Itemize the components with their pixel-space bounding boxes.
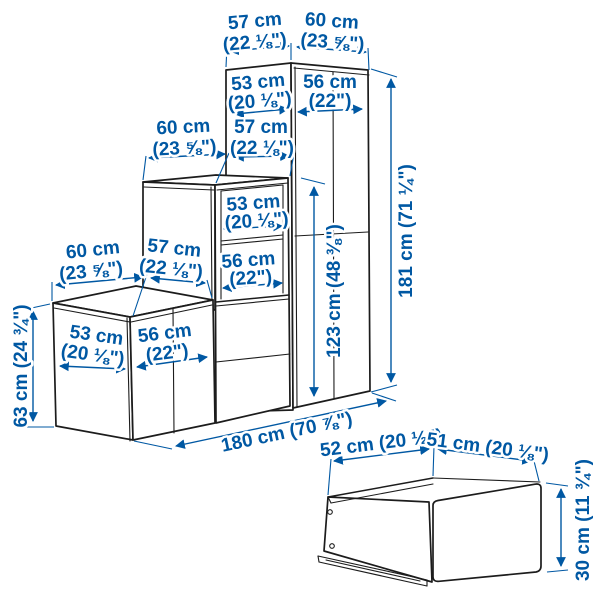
dim-height-low: 63 cm (24 ¾") <box>11 304 54 428</box>
dim-label: (22") <box>309 91 352 112</box>
dim-drawer-depth: 51 cm (20 ⅛") <box>425 429 550 481</box>
dim-label: 57 cm <box>234 117 288 138</box>
dim-label: 123 cm (48 ⅜") <box>324 224 345 358</box>
dim-label: 181 cm (71 ¼") <box>396 164 417 298</box>
dim-tall-side: 53 cm (20 ⅛") <box>225 69 292 114</box>
dim-label: 63 cm (24 ¾") <box>11 304 32 427</box>
dim-middle-shelf-upper: 53 cm (20 ⅛") <box>223 191 289 234</box>
dim-label: (22") <box>229 267 273 291</box>
dim-label: 56 cm <box>303 72 357 93</box>
dim-label: 30 cm (11 ¾") <box>573 459 594 581</box>
drawer-front-panel <box>433 484 541 581</box>
dim-height-tall: 181 cm (71 ¼") <box>371 69 417 392</box>
dim-middle-top-width: 60 cm (23 ⅝") <box>143 115 229 183</box>
dim-label: (23 ⅝") <box>152 136 217 160</box>
dim-label: (23 ⅝") <box>300 30 365 55</box>
dim-tall-top-width: 57 cm (22 ⅛") <box>220 8 291 67</box>
dim-drawer-height: 30 cm (11 ¾") <box>546 459 594 581</box>
product-dimension-diagram: 57 cm (22 ⅛") 60 cm (23 ⅝") 53 cm (20 ⅛"… <box>0 0 600 600</box>
drawer-drawing <box>318 478 541 586</box>
dimension-diagram-canvas: 57 cm (22 ⅛") 60 cm (23 ⅝") 53 cm (20 ⅛"… <box>0 0 600 600</box>
dim-label: (20 ⅛") <box>224 209 289 234</box>
low-cabinet-side-panel <box>53 303 133 440</box>
dim-label: (22 ⅛") <box>222 29 288 55</box>
dim-label: 51 cm (20 ⅛") <box>425 429 550 466</box>
dim-drawer-width: 52 cm (20 ½") <box>319 426 444 495</box>
low-cabinet-front <box>130 300 215 440</box>
dim-label: 60 cm <box>156 116 211 140</box>
dim-tall-top-depth: 60 cm (23 ⅝") <box>297 9 369 70</box>
dim-label: (22 ⅛") <box>230 138 294 159</box>
